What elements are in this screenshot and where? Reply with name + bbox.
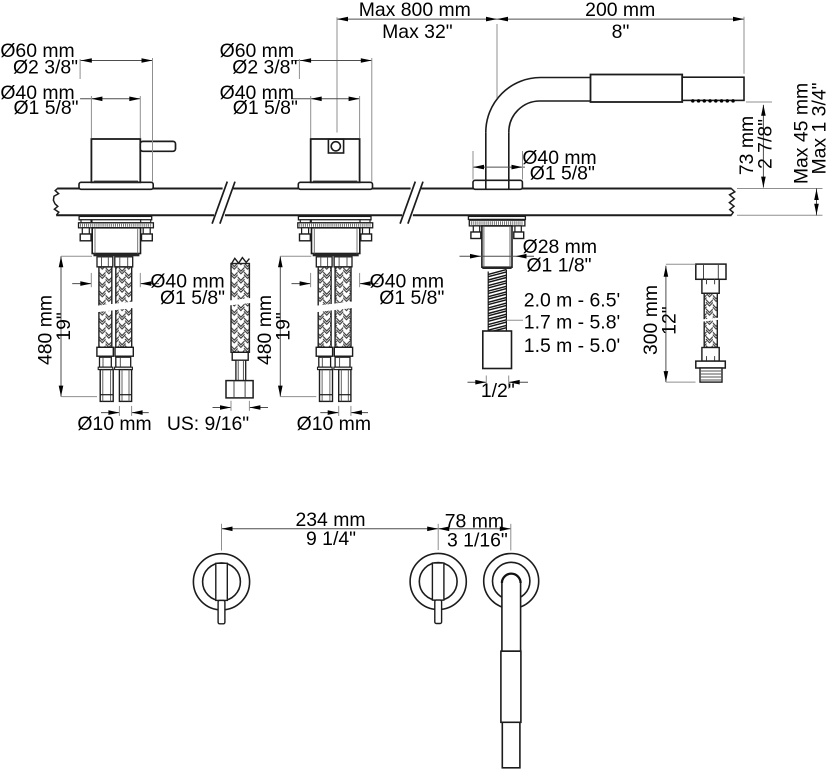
svg-text:Ø2 3/8": Ø2 3/8" (232, 57, 297, 79)
svg-text:Ø10 mm: Ø10 mm (77, 413, 151, 435)
svg-text:9 1/4": 9 1/4" (306, 528, 356, 550)
svg-text:Max 800 mm: Max 800 mm (359, 0, 471, 21)
svg-text:3 1/16": 3 1/16" (447, 529, 508, 551)
svg-text:19": 19" (53, 312, 75, 341)
svg-text:Max 32": Max 32" (382, 21, 453, 43)
svg-text:Ø1 5/8": Ø1 5/8" (13, 97, 78, 119)
svg-text:US: 9/16": US: 9/16" (167, 413, 249, 435)
svg-text:Ø1 1/8": Ø1 1/8" (526, 255, 591, 277)
svg-text:1.7 m - 5.8': 1.7 m - 5.8' (524, 312, 620, 334)
svg-text:19": 19" (272, 312, 294, 341)
svg-text:Ø1 5/8": Ø1 5/8" (379, 287, 444, 309)
svg-text:Max 1 3/4": Max 1 3/4" (809, 82, 831, 174)
svg-text:8": 8" (612, 21, 630, 43)
svg-text:Ø1 5/8": Ø1 5/8" (530, 163, 595, 185)
svg-text:1.5 m - 5.0': 1.5 m - 5.0' (524, 335, 620, 357)
svg-text:1/2": 1/2" (481, 380, 515, 402)
svg-text:Ø1 5/8": Ø1 5/8" (233, 97, 298, 119)
svg-text:Ø2 3/8": Ø2 3/8" (13, 57, 78, 79)
svg-text:2 7/8": 2 7/8" (755, 119, 777, 169)
svg-text:200 mm: 200 mm (585, 0, 655, 21)
svg-text:Ø10 mm: Ø10 mm (297, 413, 371, 435)
svg-text:12": 12" (659, 306, 681, 335)
svg-text:2.0 m - 6.5': 2.0 m - 6.5' (524, 290, 620, 312)
svg-text:Ø1 5/8": Ø1 5/8" (160, 287, 225, 309)
